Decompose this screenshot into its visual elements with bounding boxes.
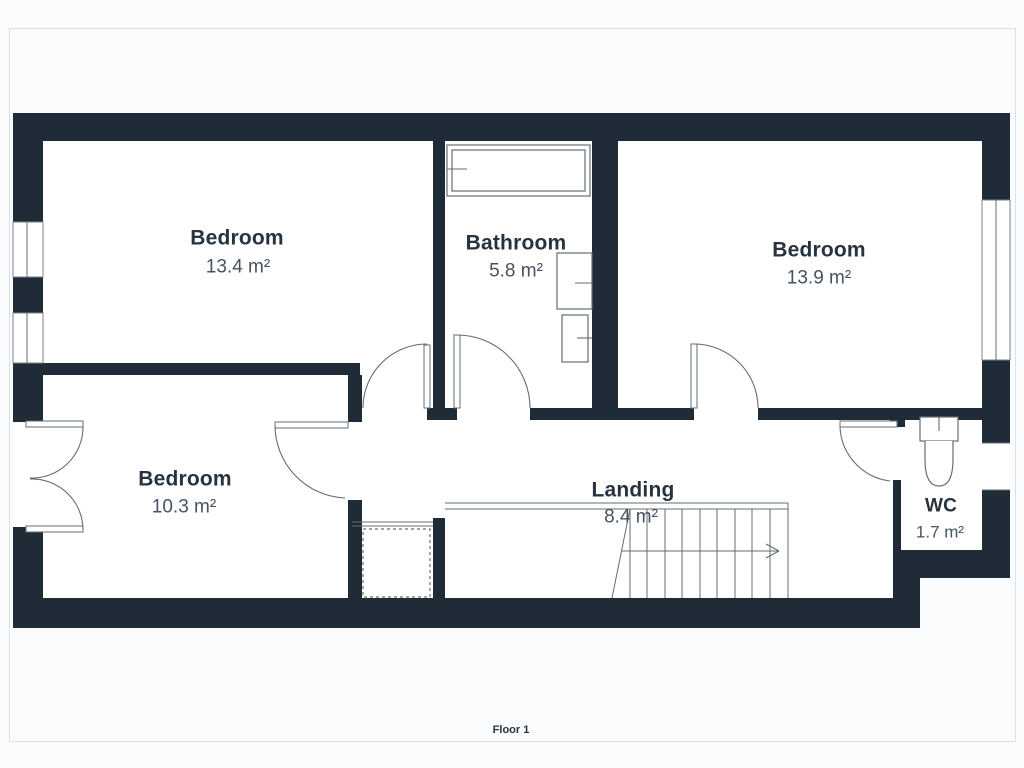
sink-icon <box>557 253 592 309</box>
wall-opening <box>982 443 1010 490</box>
room-area-bedroom-top-left: 13.4 m² <box>206 258 270 277</box>
window <box>982 200 1010 360</box>
room-area-bedroom-bottom-left: 10.3 m² <box>152 498 216 517</box>
room-name-bedroom-bottom-left: Bedroom <box>138 469 232 490</box>
room-area-wc: 1.7 m² <box>916 524 964 541</box>
bathtub-icon <box>447 145 590 196</box>
french-door <box>26 421 83 532</box>
floor-plan-symbols <box>0 0 1024 768</box>
door-bathroom <box>454 335 530 408</box>
door-wc <box>840 421 897 481</box>
room-name-wc: WC <box>925 497 957 516</box>
toilet-icon <box>920 417 958 486</box>
room-area-bathroom: 5.8 m² <box>489 262 543 281</box>
door-bedroom-bottom-left <box>275 422 348 498</box>
storage-dashed-box <box>352 522 433 597</box>
room-area-landing: 8.4 m² <box>604 508 658 527</box>
floor-plan-canvas: Bedroom 13.4 m² Bathroom 5.8 m² Bedroom … <box>0 0 1024 768</box>
room-name-bathroom: Bathroom <box>466 233 567 254</box>
toilet-icon <box>562 315 592 362</box>
floor-label: Floor 1 <box>493 724 530 736</box>
door-bedroom-top-left <box>363 344 430 408</box>
window <box>13 313 43 363</box>
room-name-bedroom-top-left: Bedroom <box>190 228 284 249</box>
window <box>13 222 43 277</box>
door-bedroom-right <box>691 344 758 408</box>
room-area-bedroom-right: 13.9 m² <box>787 269 851 288</box>
room-name-landing: Landing <box>591 480 674 501</box>
room-name-bedroom-right: Bedroom <box>772 240 866 261</box>
